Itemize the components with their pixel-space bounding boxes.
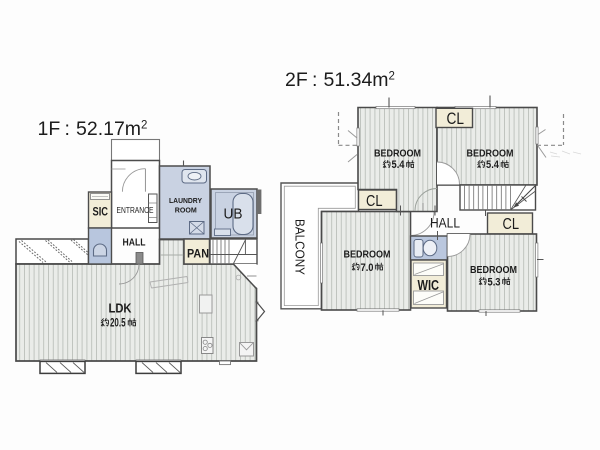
svg-text:SIC: SIC [93, 205, 109, 219]
svg-text:BEDROOM: BEDROOM [374, 149, 421, 160]
svg-text:ENTRANCE: ENTRANCE [117, 206, 154, 215]
svg-text:5.3: 5.3 [488, 277, 501, 289]
svg-text:PAN: PAN [187, 247, 209, 261]
svg-text:ROOM: ROOM [175, 206, 197, 215]
svg-text:BALCONY: BALCONY [293, 219, 308, 275]
svg-text:HALL: HALL [430, 216, 460, 231]
svg-text:5.4: 5.4 [392, 159, 406, 171]
svg-text:LDK: LDK [109, 302, 132, 316]
svg-text:7.0: 7.0 [361, 262, 374, 274]
svg-text:BEDROOM: BEDROOM [467, 149, 514, 160]
svg-text:LAUNDRY: LAUNDRY [169, 196, 202, 205]
svg-text:CL: CL [447, 110, 465, 128]
svg-text:20.5: 20.5 [110, 316, 126, 330]
svg-text:BEDROOM: BEDROOM [344, 250, 391, 261]
svg-text:2F:51.34m2: 2F:51.34m2 [285, 69, 395, 91]
svg-text:HALL: HALL [123, 237, 146, 249]
svg-text:UB: UB [224, 206, 243, 223]
svg-text:CL: CL [366, 193, 383, 210]
svg-text:WIC: WIC [418, 278, 440, 294]
svg-text:5.4: 5.4 [486, 159, 500, 171]
svg-text:CL: CL [503, 216, 520, 233]
svg-text:1F:52.17m2: 1F:52.17m2 [38, 118, 148, 140]
svg-text:BEDROOM: BEDROOM [470, 265, 517, 276]
